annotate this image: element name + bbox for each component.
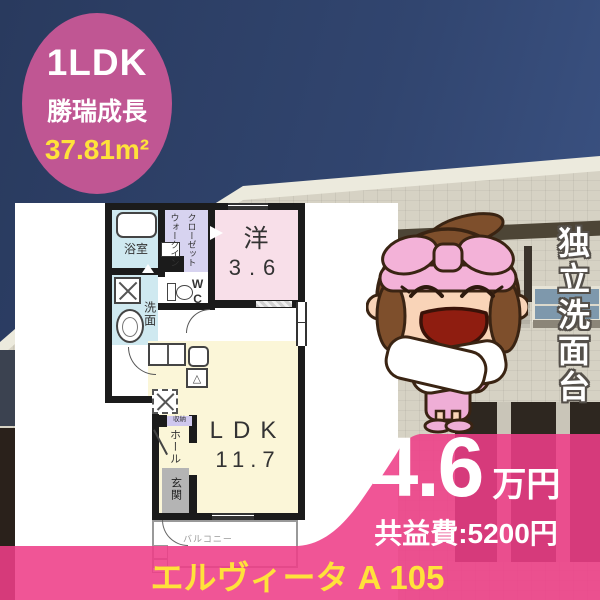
layout-type: 1LDK [47,42,148,84]
feature-text-vertical: 独立洗面台 [549,226,595,416]
floor-area: 37.81m² [45,134,149,166]
location-name: 勝瑞成長 [47,92,147,128]
rent-value: 4.6 [372,428,483,508]
info-badge: 1LDK 勝瑞成長 37.81m² [22,13,172,194]
listing-ad: △ 浴室 ウォークイン クローゼット 洋 3.6 洗面 WC 収納 ホール 玄関… [0,0,600,600]
common-fee: 共益費:5200円 [336,512,596,552]
price-block: 4.6 万円 共益費:5200円 [336,428,596,552]
property-name: エルヴィータ A 105 [20,551,575,599]
rent-unit: 万円 [492,457,560,506]
